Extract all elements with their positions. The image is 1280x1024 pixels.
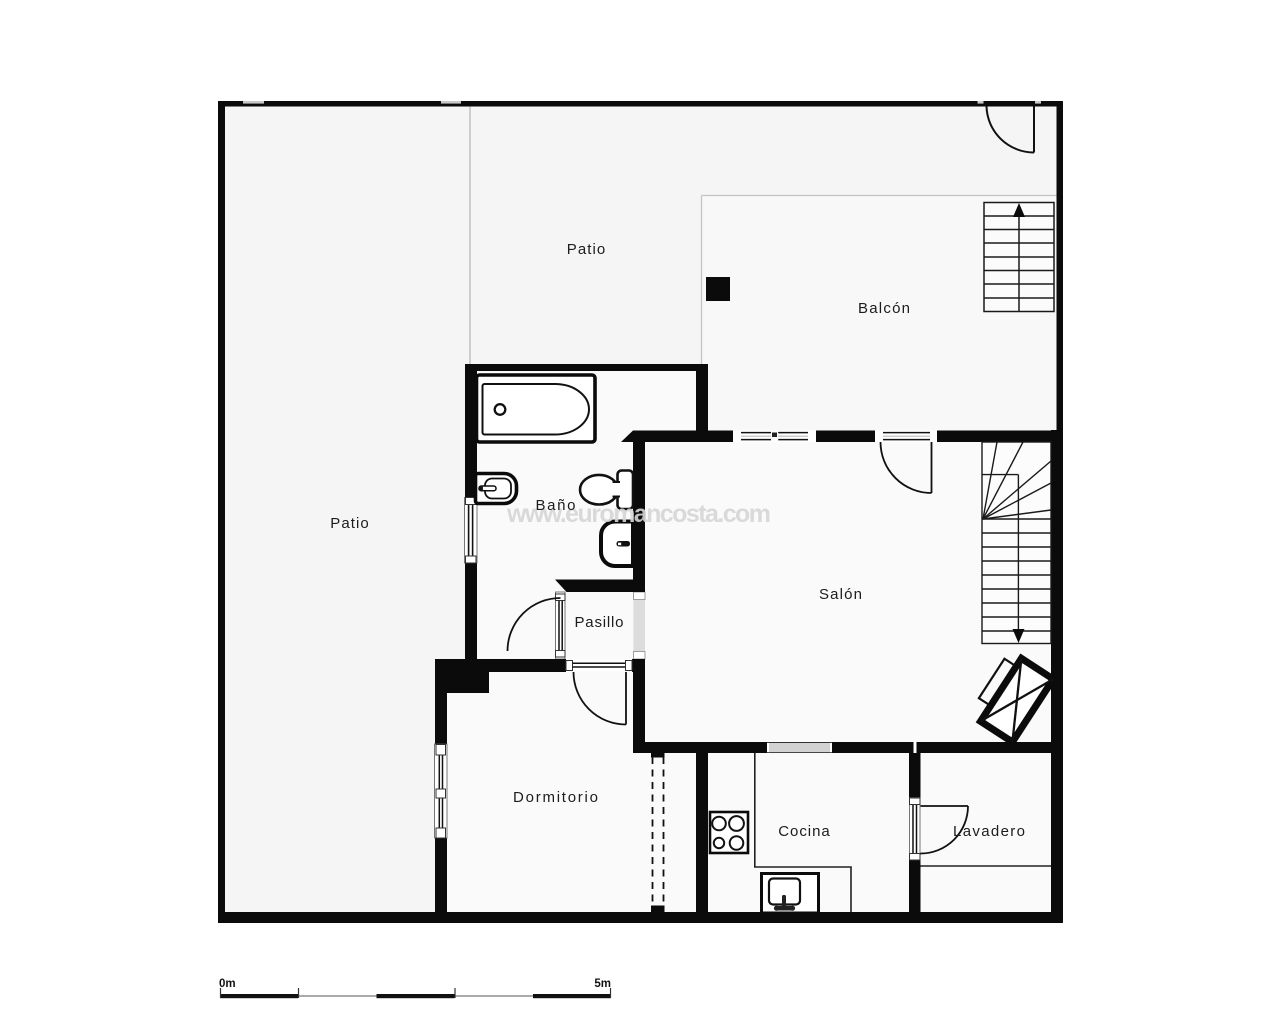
svg-text:Pasillo: Pasillo: [575, 614, 624, 631]
svg-text:www.euromancosta.com: www.euromancosta.com: [506, 500, 771, 528]
svg-text:Patio: Patio: [567, 241, 606, 258]
svg-text:Balcón: Balcón: [858, 300, 910, 317]
svg-text:0m: 0m: [219, 978, 236, 990]
svg-text:Patio: Patio: [330, 515, 369, 532]
svg-text:Cocina: Cocina: [778, 823, 830, 840]
svg-text:Baño: Baño: [536, 497, 576, 514]
svg-text:5m: 5m: [594, 978, 611, 990]
svg-text:Lavadero: Lavadero: [953, 823, 1025, 840]
svg-text:Salón: Salón: [819, 586, 862, 603]
